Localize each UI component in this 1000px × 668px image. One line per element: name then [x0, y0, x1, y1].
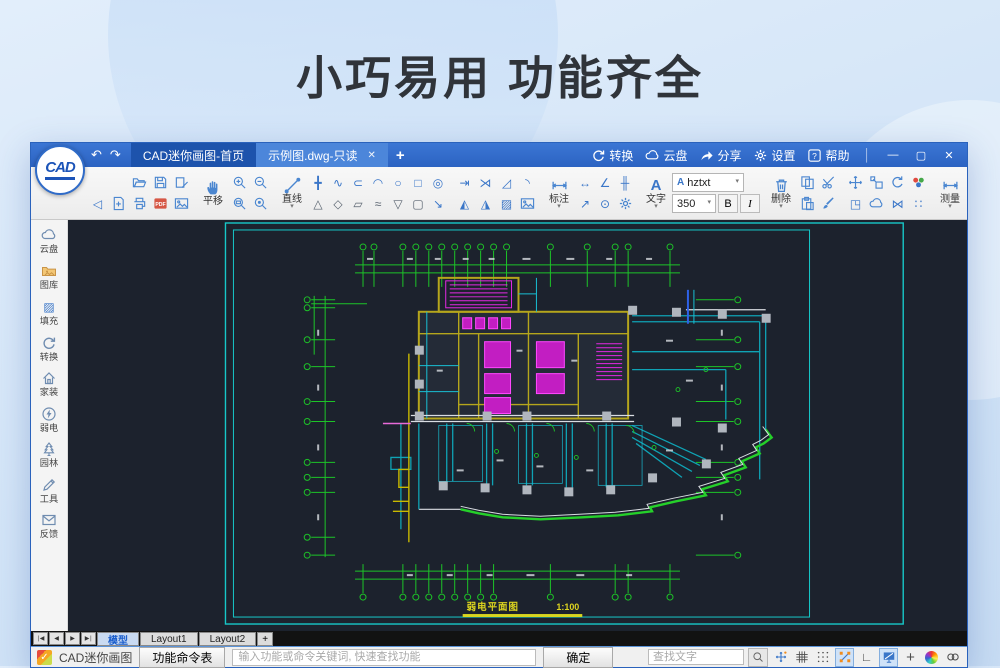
confirm-button[interactable]: 确定	[543, 647, 613, 668]
undo-icon[interactable]: ◁	[89, 195, 107, 212]
cloud-icon	[645, 148, 660, 163]
sidebar-label: 反馈	[40, 529, 58, 540]
sidebar-item-cloud[interactable]: 云盘	[31, 225, 67, 258]
share-icon	[699, 148, 714, 163]
chevron-down-icon: ▾	[707, 201, 711, 205]
chevron-down-icon: ▾	[779, 205, 783, 209]
titlebar: ↶ ↷ CAD迷你画图-首页 示例图.dwg-只读 ✕ + 转换 云盘 分享 设…	[31, 143, 967, 167]
trash-icon	[773, 177, 790, 194]
chamfer-icon[interactable]: ◿	[498, 174, 516, 191]
tab-home-label: CAD迷你画图-首页	[143, 147, 244, 164]
properties-icon[interactable]	[911, 175, 926, 190]
drawing-canvas[interactable]: 弱电平面图 1:100	[68, 220, 967, 631]
measure-tool[interactable]: 测量 ▾	[935, 177, 965, 210]
polygon-alt-icon[interactable]: ◮	[477, 195, 495, 212]
home-icon	[41, 370, 57, 386]
maximize-button[interactable]: ▢	[913, 149, 929, 162]
new-tab-button[interactable]: +	[396, 147, 405, 164]
sidebar-label: 工具	[40, 494, 58, 505]
sidebar-label: 家装	[40, 387, 58, 398]
minimize-button[interactable]: —	[885, 149, 901, 161]
settings-label: 设置	[771, 147, 795, 164]
trim-icon[interactable]: ⇥	[456, 174, 474, 191]
ortho-mode-icon[interactable]: ∟	[858, 649, 875, 666]
app-badge-icon: ✓	[37, 650, 52, 665]
mirror-icon[interactable]: ⋈	[889, 195, 907, 212]
command-search-input[interactable]	[232, 649, 536, 666]
tab-home[interactable]: CAD迷你画图-首页	[131, 143, 256, 167]
sidebar-item-gallery[interactable]: 图库	[31, 261, 67, 294]
sidebar-item-hatch[interactable]: ▨填充	[31, 296, 67, 330]
drawing-title: 弱电平面图	[467, 601, 519, 613]
object-snap-icon[interactable]	[835, 648, 854, 667]
help-icon	[807, 148, 822, 163]
cloud-icon	[41, 227, 57, 243]
dim-leader-icon[interactable]: ↗	[576, 195, 594, 212]
chevron-down-icon: ▾	[557, 205, 561, 209]
mail-icon	[41, 512, 57, 528]
linked-rings-icon[interactable]	[944, 649, 961, 666]
zoom-out-icon[interactable]	[253, 175, 268, 190]
rotate-ref-icon[interactable]: ◳	[847, 195, 865, 212]
font-family-select[interactable]: A hztxt ▾	[672, 173, 744, 192]
dim-linear-icon[interactable]: ╫	[616, 174, 634, 191]
tab-nav-last[interactable]: ▶∣	[81, 632, 96, 645]
object-snap-tracking-icon[interactable]	[772, 649, 789, 666]
polygon-icon[interactable]: ◭	[456, 195, 474, 212]
gallery-icon	[41, 263, 57, 279]
polyline-icon[interactable]: ∿	[329, 174, 347, 191]
forward-icon[interactable]: ↷	[110, 147, 121, 163]
sidebar-label: 弱电	[40, 423, 58, 434]
rotate-icon[interactable]	[890, 175, 905, 190]
titlebar-separator: │	[864, 148, 872, 162]
statusbar: ✓ CAD迷你画图 功能命令表 确定 ∟ +	[31, 646, 967, 667]
sidebar-item-garden[interactable]: 园林	[31, 439, 67, 472]
command-table-button[interactable]: 功能命令表	[139, 647, 225, 668]
sidebar-label: 转换	[40, 352, 58, 363]
font-marker-icon: A	[677, 177, 684, 188]
font-size-value: 350	[677, 198, 695, 210]
offset-icon[interactable]: ⊂	[349, 174, 367, 191]
construction-line-icon[interactable]: ╋	[309, 174, 327, 191]
ellipse-icon[interactable]: ◎	[429, 174, 447, 191]
open-file-icon[interactable]	[132, 175, 147, 190]
pentagon-icon[interactable]: ◇	[329, 195, 347, 212]
tree-icon	[41, 441, 57, 457]
find-text-input[interactable]	[648, 649, 744, 665]
copy-icon[interactable]	[800, 175, 815, 190]
drawing-scale: 1:100	[556, 602, 579, 612]
help-label: 帮助	[825, 147, 849, 164]
trapezoid-icon[interactable]: ▽	[389, 195, 407, 212]
refresh-icon	[41, 335, 57, 351]
text-a-icon: A	[647, 177, 665, 194]
help-button[interactable]: 帮助	[807, 147, 849, 164]
share-button[interactable]: 分享	[699, 147, 741, 164]
tab-nav-next[interactable]: ▶	[65, 632, 80, 645]
convert-button[interactable]: 转换	[591, 147, 633, 164]
insert-image-icon[interactable]	[520, 196, 535, 211]
print-icon[interactable]	[132, 196, 147, 211]
crosshair-icon[interactable]: +	[902, 649, 919, 666]
paste-icon[interactable]	[800, 196, 815, 211]
convert-label: 转换	[609, 147, 633, 164]
move-icon[interactable]	[848, 175, 863, 190]
zoom-window-icon[interactable]	[232, 196, 247, 211]
zoom-in-icon[interactable]	[232, 175, 247, 190]
arc-icon[interactable]: ◠	[369, 174, 387, 191]
dimension-icon	[551, 177, 568, 194]
font-family-value: hztxt	[687, 177, 710, 189]
app-logo: CAD	[35, 145, 85, 195]
break-icon[interactable]: ⋊	[477, 174, 495, 191]
cloud-label: 云盘	[663, 147, 687, 164]
circle-icon[interactable]: ○	[389, 174, 407, 191]
tab-model[interactable]: 模型	[97, 632, 139, 646]
dim-radius-icon[interactable]: ⊙	[596, 195, 614, 212]
app-name: CAD迷你画图	[59, 649, 132, 666]
export-image-icon[interactable]	[174, 196, 189, 211]
banner-title: 小巧易用 功能齐全	[0, 42, 1000, 108]
dimension-tool[interactable]: 标注 ▾	[544, 177, 574, 210]
arrow-line-icon[interactable]: ↘	[429, 195, 447, 212]
layout-tab-bar: ∣◀ ◀ ▶ ▶∣ 模型 Layout1 Layout2 +	[31, 631, 967, 646]
sidebar-item-convert[interactable]: 转换	[31, 333, 67, 366]
sidebar: 云盘 图库 ▨填充 转换 家装 弱电 园林 工具 反馈	[31, 220, 68, 631]
app-logo-text: CAD	[45, 160, 75, 180]
export-pdf-icon[interactable]	[153, 196, 168, 211]
dim-angle-icon[interactable]: ∠	[596, 174, 614, 191]
parallelogram-icon[interactable]: ▱	[349, 195, 367, 212]
settings-button[interactable]: 设置	[753, 147, 795, 164]
color-wheel-icon[interactable]	[923, 649, 940, 666]
rectangle-icon[interactable]: □	[409, 174, 427, 191]
hatch-fill-icon: ▨	[40, 298, 58, 315]
italic-button[interactable]: I	[740, 194, 760, 213]
font-size-select[interactable]: 350 ▾	[672, 194, 716, 213]
tab-document-label: 示例图.dwg-只读	[268, 147, 357, 164]
tab-layout1[interactable]: Layout1	[140, 632, 198, 646]
gear-icon	[753, 148, 768, 163]
grid-display-icon[interactable]	[793, 649, 810, 666]
line-tool[interactable]: 直线 ▾	[277, 177, 307, 210]
cloud-button[interactable]: 云盘	[645, 147, 687, 164]
format-brush-icon[interactable]	[821, 196, 836, 211]
scale-icon[interactable]	[869, 175, 884, 190]
dim-settings-icon[interactable]	[618, 196, 633, 211]
refresh-icon	[591, 148, 606, 163]
add-layout-button[interactable]: +	[257, 632, 273, 646]
fillet-icon[interactable]: ◝	[519, 174, 537, 191]
hatch-icon[interactable]: ▨	[498, 195, 516, 212]
line-icon	[284, 177, 301, 194]
chevron-down-icon: ▾	[735, 180, 739, 184]
new-file-icon[interactable]	[111, 196, 126, 211]
zoom-fit-icon[interactable]	[253, 196, 268, 211]
sidebar-item-home-deco[interactable]: 家装	[31, 368, 67, 401]
save-as-icon[interactable]	[174, 175, 189, 190]
spline-icon[interactable]: ≈	[369, 195, 387, 212]
back-icon[interactable]: ↶	[91, 147, 102, 163]
measure-icon	[942, 177, 959, 194]
search-button[interactable]	[748, 648, 768, 667]
lightning-icon	[41, 406, 57, 422]
dim-aligned-icon[interactable]: ↔	[576, 174, 594, 191]
bold-button[interactable]: B	[718, 194, 738, 213]
chevron-down-icon: ▾	[948, 205, 952, 209]
rounded-rect-icon[interactable]: ▢	[409, 195, 427, 212]
sidebar-label: 园林	[40, 458, 58, 469]
grid-dots-icon[interactable]	[814, 649, 831, 666]
triangle-icon[interactable]: △	[309, 195, 327, 212]
app-window: CAD ↶ ↷ CAD迷你画图-首页 示例图.dwg-只读 ✕ + 转换 云盘 …	[30, 142, 968, 668]
tab-document[interactable]: 示例图.dwg-只读 ✕	[256, 143, 388, 167]
revision-cloud-icon[interactable]	[869, 196, 884, 211]
toolbar: ◁ 平移 直线 ▾	[31, 167, 967, 220]
sidebar-item-tools[interactable]: 工具	[31, 475, 67, 508]
sidebar-item-feedback[interactable]: 反馈	[31, 510, 67, 543]
close-button[interactable]: ✕	[941, 149, 957, 162]
tab-nav-first[interactable]: ∣◀	[33, 632, 48, 645]
sidebar-label: 云盘	[40, 244, 58, 255]
chevron-down-icon: ▾	[654, 205, 658, 209]
delete-tool[interactable]: 删除 ▾	[766, 177, 796, 210]
cut-icon[interactable]	[821, 175, 836, 190]
search-icon	[752, 651, 764, 663]
pen-icon	[41, 477, 57, 493]
hand-icon	[205, 179, 222, 196]
full-screen-icon[interactable]	[879, 648, 898, 667]
tab-nav-prev[interactable]: ◀	[49, 632, 64, 645]
sidebar-label: 填充	[40, 316, 58, 327]
sidebar-label: 图库	[40, 280, 58, 291]
share-label: 分享	[717, 147, 741, 164]
chevron-down-icon: ▾	[290, 205, 294, 209]
array-icon[interactable]: ∷	[910, 195, 928, 212]
pan-label: 平移	[203, 196, 223, 208]
tab-close-icon[interactable]: ✕	[368, 150, 376, 161]
tab-layout2[interactable]: Layout2	[199, 632, 257, 646]
text-tool[interactable]: A 文字 ▾	[641, 177, 671, 210]
cad-drawing: 弱电平面图 1:100	[68, 220, 967, 631]
pan-tool[interactable]: 平移	[198, 179, 228, 208]
sidebar-item-electric[interactable]: 弱电	[31, 404, 67, 437]
save-icon[interactable]	[153, 175, 168, 190]
